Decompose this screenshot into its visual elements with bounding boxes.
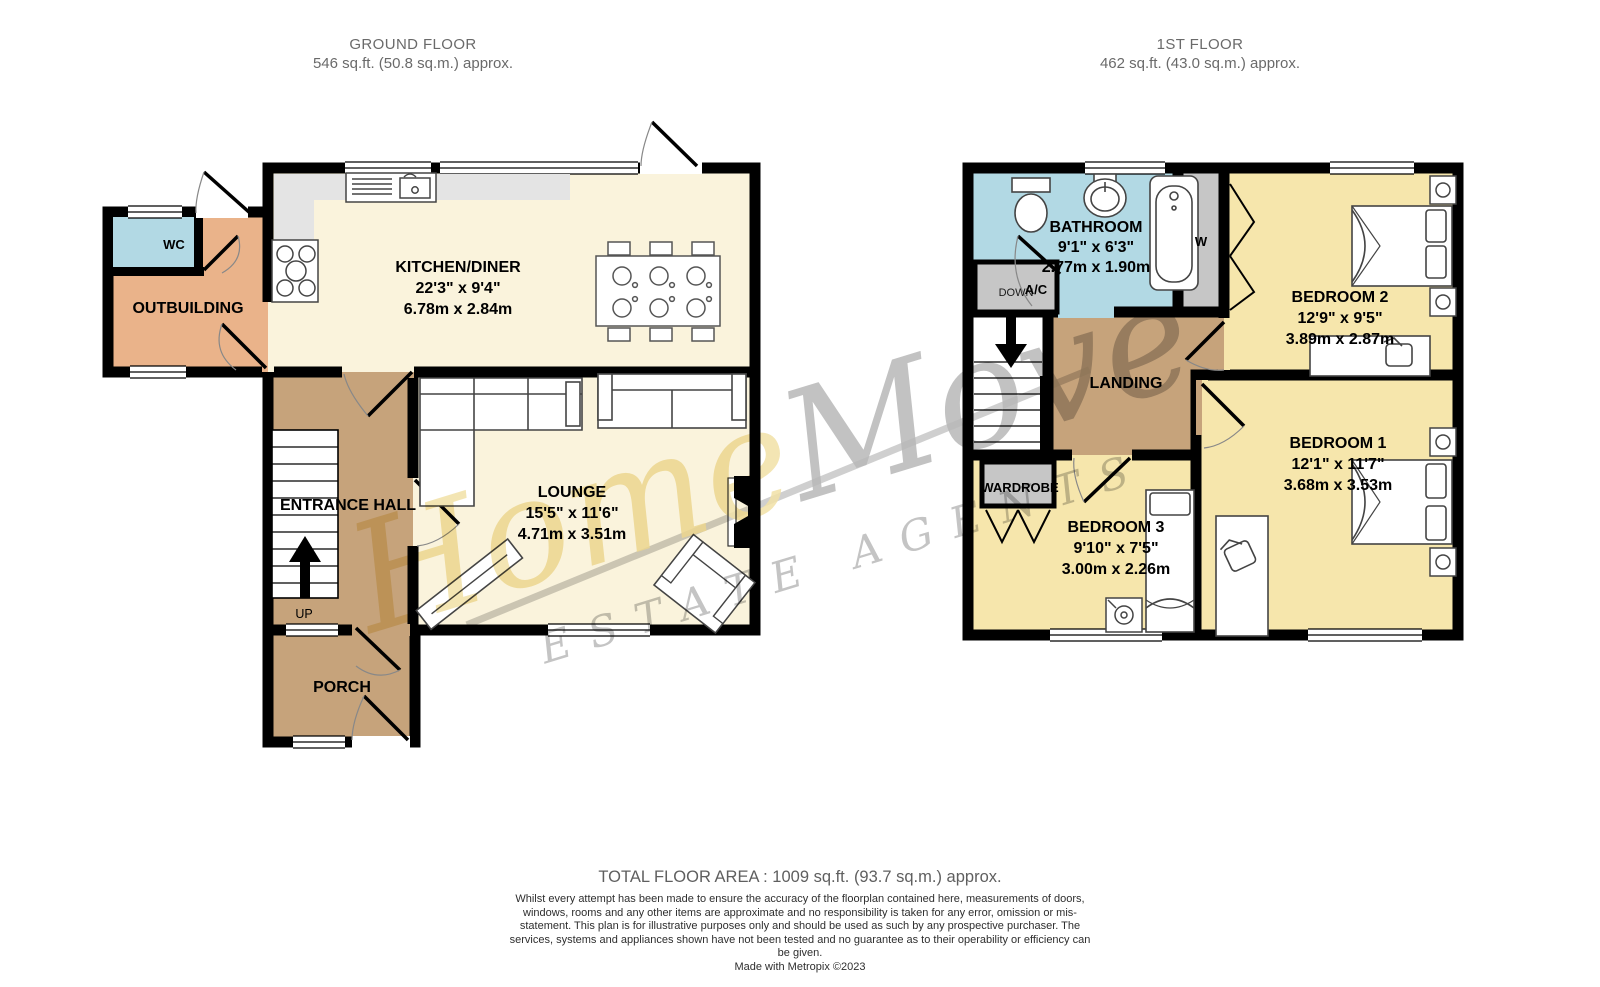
window-icon bbox=[293, 736, 345, 748]
window-icon bbox=[130, 366, 186, 378]
bedroom1-dims-ft: 12'1" x 11'7" bbox=[1291, 456, 1384, 473]
bathroom-dims-ft: 9'1" x 6'3" bbox=[1058, 239, 1134, 256]
window-icon bbox=[1085, 162, 1165, 174]
bedroom3-label: BEDROOM 3 bbox=[1068, 519, 1165, 536]
window-icon bbox=[286, 624, 338, 636]
lounge-dims-m: 4.71m x 3.51m bbox=[518, 526, 627, 543]
outbuilding-label: OUTBUILDING bbox=[132, 300, 243, 317]
landing-label: LANDING bbox=[1090, 375, 1163, 392]
bathroom-dims-m: 2.77m x 1.90m bbox=[1042, 259, 1151, 276]
stove-icon bbox=[272, 240, 318, 302]
door-icon bbox=[641, 122, 697, 166]
bedroom2-label: BEDROOM 2 bbox=[1292, 289, 1389, 306]
wc-label: WC bbox=[163, 237, 185, 252]
bedroom1-label: BEDROOM 1 bbox=[1290, 435, 1387, 452]
bedroom3-dims-m: 3.00m x 2.26m bbox=[1062, 561, 1171, 578]
porch-label: PORCH bbox=[313, 679, 371, 696]
floorplan-page: { "ground_floor": { "title": "GROUND FLO… bbox=[0, 0, 1600, 987]
bedroom2-dims-ft: 12'9" x 9'5" bbox=[1297, 310, 1382, 327]
total-floor-area: TOTAL FLOOR AREA : 1009 sq.ft. (93.7 sq.… bbox=[200, 868, 1400, 887]
bedroom2-dims-m: 3.89m x 2.87m bbox=[1286, 331, 1395, 348]
wc-wall-bottom bbox=[106, 267, 204, 276]
window-icon bbox=[1330, 162, 1414, 174]
kitchen-dims-ft: 22'3" x 9'4" bbox=[415, 280, 500, 297]
sink-icon bbox=[346, 173, 436, 202]
bedroom1-dims-m: 3.68m x 3.53m bbox=[1284, 477, 1393, 494]
up-label: UP bbox=[295, 607, 312, 621]
double-bed-icon bbox=[1352, 206, 1452, 286]
wc-wall-right bbox=[194, 212, 203, 274]
kitchen-label: KITCHEN/DINER bbox=[395, 259, 521, 276]
window-icon bbox=[345, 162, 431, 174]
staircase-up bbox=[272, 430, 338, 598]
window-icon bbox=[440, 162, 638, 174]
kitchen-dims-m: 6.78m x 2.84m bbox=[404, 301, 513, 318]
bathroom-label: BATHROOM bbox=[1049, 219, 1142, 236]
metropix-credit: Made with Metropix ©2023 bbox=[200, 961, 1400, 975]
bedroom3-dims-ft: 9'10" x 7'5" bbox=[1073, 540, 1158, 557]
window-icon bbox=[1308, 629, 1422, 641]
disclaimer-text: Whilst every attempt has been made to en… bbox=[508, 893, 1093, 961]
w-closet-label: W bbox=[1195, 234, 1208, 249]
entrance-hall-label: ENTRANCE HALL bbox=[280, 497, 416, 514]
window-icon bbox=[128, 206, 182, 218]
toilet-icon bbox=[1012, 178, 1050, 232]
lounge-dims-ft: 15'5" x 11'6" bbox=[525, 505, 618, 522]
airing-cupboard-label: A/C bbox=[1025, 282, 1048, 297]
dining-table-icon bbox=[596, 242, 720, 341]
footer: TOTAL FLOOR AREA : 1009 sq.ft. (93.7 sq.… bbox=[200, 868, 1400, 974]
floorplan-drawing: HomeMove ESTATE AGENTS WC OUTBUILDING KI… bbox=[0, 0, 1600, 860]
desk-icon bbox=[1216, 516, 1268, 636]
lounge-label: LOUNGE bbox=[538, 484, 607, 501]
wardrobe-label: WARDROBE bbox=[981, 480, 1059, 495]
bedside-cabinet-icon bbox=[1106, 598, 1142, 632]
